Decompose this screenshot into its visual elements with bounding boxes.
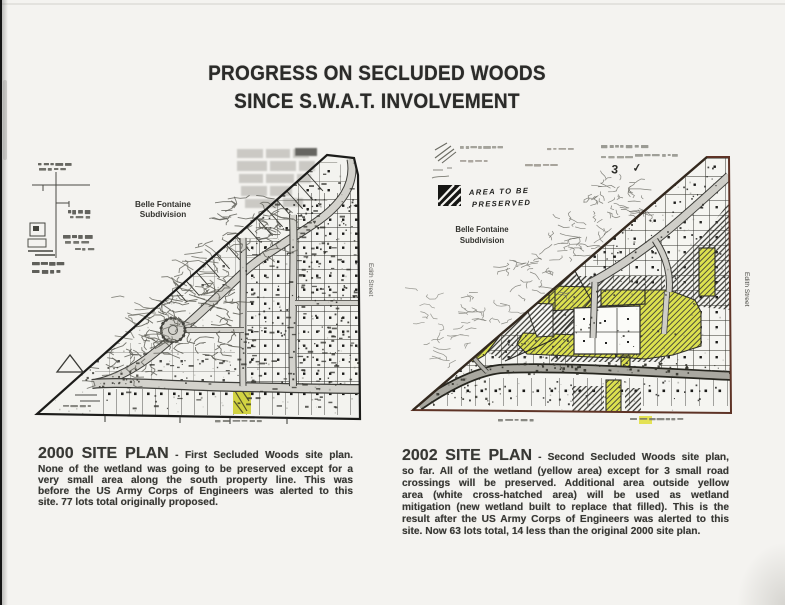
svg-text:Subdivision: Subdivision [460,236,504,245]
svg-text:PRESERVED: PRESERVED [472,198,532,209]
svg-text:Edith Street: Edith Street [367,263,374,297]
svg-text:Edith Street: Edith Street [743,272,750,307]
svg-text:AREA TO BE: AREA TO BE [468,186,530,197]
svg-text:Subdivision: Subdivision [140,210,186,219]
svg-text:Belle Fontaine: Belle Fontaine [135,200,191,209]
svg-text:Belle Fontaine: Belle Fontaine [455,225,509,234]
svg-text:✓: ✓ [632,162,643,175]
svg-text:3: 3 [611,162,619,177]
